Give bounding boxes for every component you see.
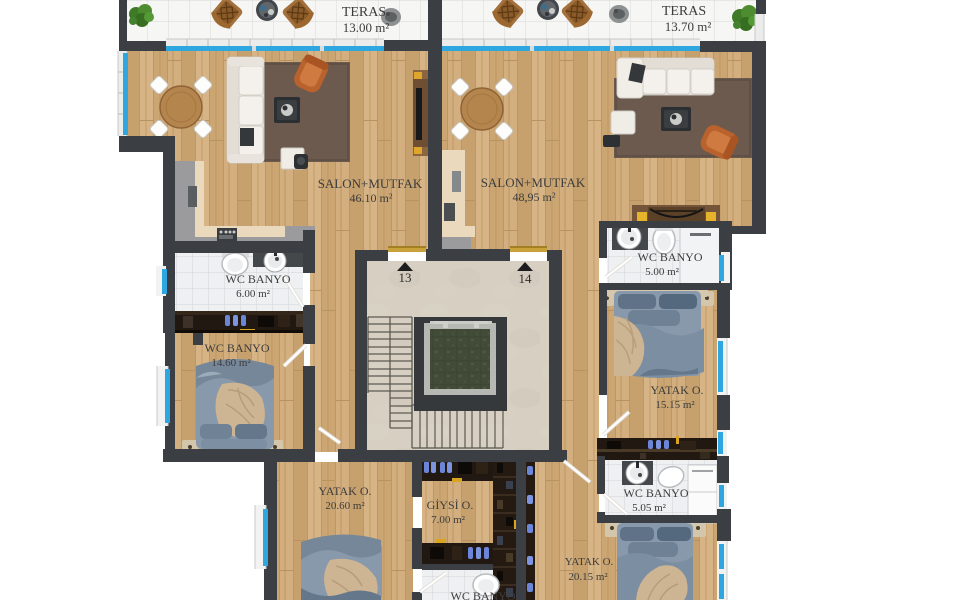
- svg-text:5.05 m²: 5.05 m²: [632, 502, 667, 514]
- svg-text:14.60 m²: 14.60 m²: [211, 357, 251, 369]
- svg-text:13.70 m²: 13.70 m²: [665, 19, 712, 34]
- svg-text:YATAK O.: YATAK O.: [318, 484, 371, 498]
- svg-text:13: 13: [399, 270, 412, 285]
- svg-text:TERAS: TERAS: [342, 5, 386, 20]
- svg-text:5.00 m²: 5.00 m²: [645, 266, 680, 278]
- svg-text:48,95 m²: 48,95 m²: [513, 190, 556, 204]
- svg-text:14: 14: [519, 271, 533, 286]
- svg-text:15.15 m²: 15.15 m²: [655, 399, 695, 411]
- svg-text:YATAK O.: YATAK O.: [565, 556, 614, 568]
- svg-text:WC BANYO: WC BANYO: [451, 589, 516, 600]
- svg-text:13.00 m²: 13.00 m²: [343, 20, 390, 35]
- svg-text:WC BANYO: WC BANYO: [624, 486, 689, 500]
- svg-text:46.10 m²: 46.10 m²: [350, 191, 393, 205]
- svg-text:20.60 m²: 20.60 m²: [325, 500, 365, 512]
- svg-text:20.15 m²: 20.15 m²: [568, 571, 608, 583]
- svg-text:SALON+MUTFAK: SALON+MUTFAK: [481, 175, 586, 190]
- svg-text:YATAK O.: YATAK O.: [650, 383, 703, 397]
- svg-text:WC BANYO: WC BANYO: [205, 341, 270, 355]
- svg-text:6.00 m²: 6.00 m²: [236, 288, 271, 300]
- svg-text:TERAS: TERAS: [662, 4, 706, 19]
- svg-text:SALON+MUTFAK: SALON+MUTFAK: [318, 176, 423, 191]
- svg-text:WC BANYO: WC BANYO: [638, 250, 703, 264]
- svg-text:GİYSİ O.: GİYSİ O.: [427, 498, 474, 512]
- svg-text:7.00 m²: 7.00 m²: [431, 514, 466, 526]
- svg-text:WC BANYO: WC BANYO: [226, 272, 291, 286]
